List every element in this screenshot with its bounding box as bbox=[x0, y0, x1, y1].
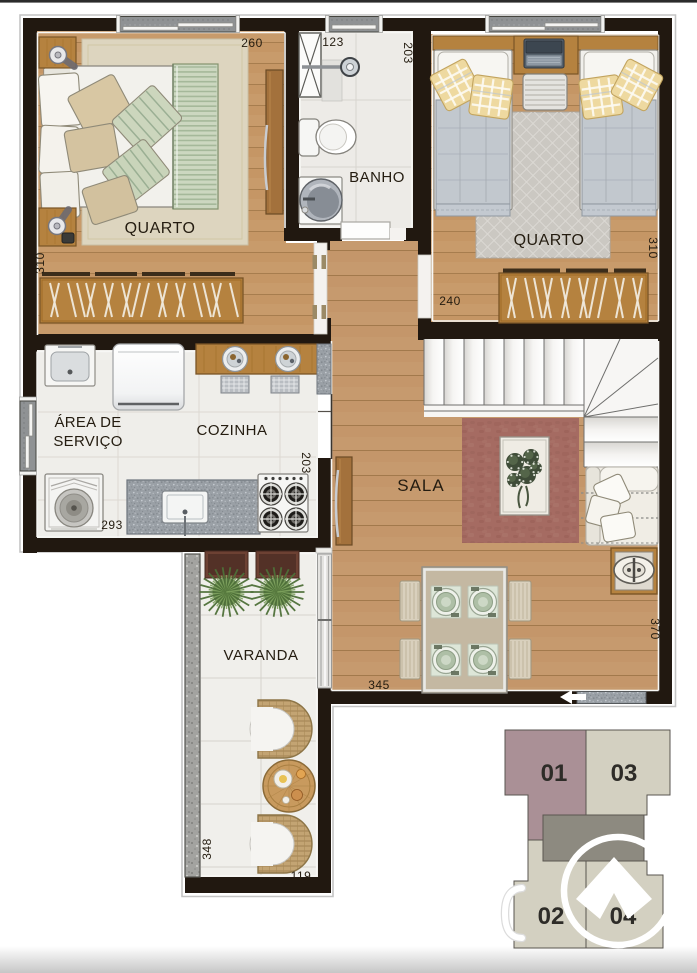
svg-text:370: 370 bbox=[648, 618, 662, 640]
svg-text:QUARTO: QUARTO bbox=[125, 220, 196, 237]
svg-text:01: 01 bbox=[541, 760, 568, 787]
svg-text:COZINHA: COZINHA bbox=[197, 422, 268, 439]
svg-text:310: 310 bbox=[646, 237, 660, 259]
svg-text:119: 119 bbox=[291, 869, 312, 883]
svg-text:VARANDA: VARANDA bbox=[224, 647, 299, 664]
svg-text:QUARTO: QUARTO bbox=[514, 232, 585, 249]
svg-text:SALA: SALA bbox=[397, 476, 444, 495]
svg-text:123: 123 bbox=[322, 35, 344, 49]
svg-text:02: 02 bbox=[538, 903, 565, 930]
svg-text:310: 310 bbox=[33, 252, 47, 274]
svg-text:260: 260 bbox=[241, 36, 263, 50]
svg-text:293: 293 bbox=[101, 518, 123, 532]
svg-text:BANHO: BANHO bbox=[349, 169, 405, 186]
svg-text:345: 345 bbox=[368, 678, 390, 692]
svg-text:03: 03 bbox=[611, 760, 638, 787]
svg-text:203: 203 bbox=[401, 42, 415, 64]
svg-text:SERVIÇO: SERVIÇO bbox=[53, 433, 122, 450]
svg-text:240: 240 bbox=[439, 294, 461, 308]
svg-text:348: 348 bbox=[200, 838, 214, 860]
svg-text:ÁREA DE: ÁREA DE bbox=[54, 414, 121, 431]
svg-text:203: 203 bbox=[299, 452, 313, 474]
